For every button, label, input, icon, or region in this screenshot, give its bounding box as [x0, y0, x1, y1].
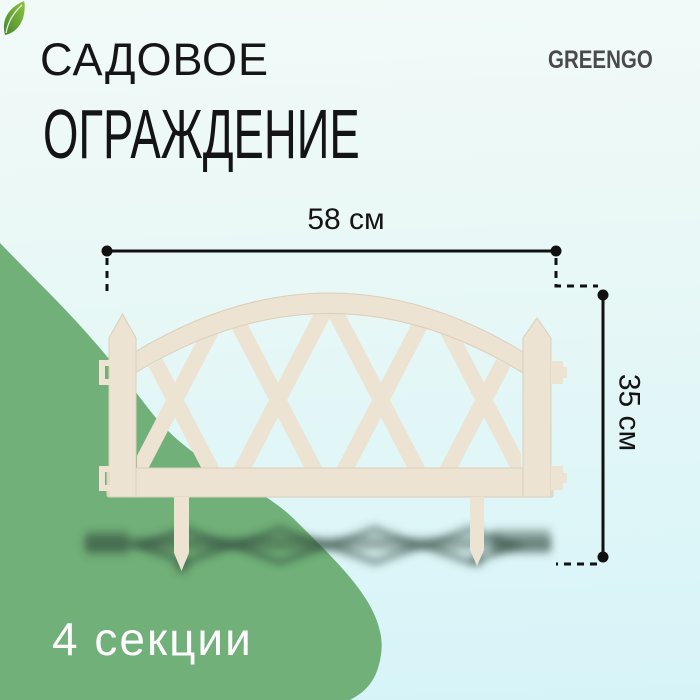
fence-right-lower-tab: [551, 466, 567, 490]
height-dim-bottom-dot: [598, 552, 609, 563]
fence-left-post: [109, 314, 136, 497]
leaf-icon: [0, 0, 28, 38]
fence-bottom-rail: [107, 468, 553, 497]
product-card: САДОВОЕ ОГРАЖДЕНИЕ GREENGO 58 см 35 см 4…: [0, 0, 700, 700]
sections-badge: 4 секции: [52, 616, 253, 662]
width-dim-right-dot: [551, 246, 562, 257]
brand-name: GREENGO: [548, 48, 653, 73]
width-dim-left-dot: [102, 246, 113, 257]
width-dim-right-extension: [556, 258, 598, 286]
height-dimension-label: 35 см: [613, 373, 644, 453]
width-dimension-label: 58 см: [266, 205, 426, 235]
page-title-line2: ОГРАЖДЕНИЕ: [43, 99, 360, 169]
page-title-line1: САДОВОЕ: [40, 37, 269, 82]
height-dim-top-dot: [598, 290, 609, 301]
fence-right-post: [523, 318, 551, 497]
fence-right-upper-tab: [551, 361, 567, 384]
